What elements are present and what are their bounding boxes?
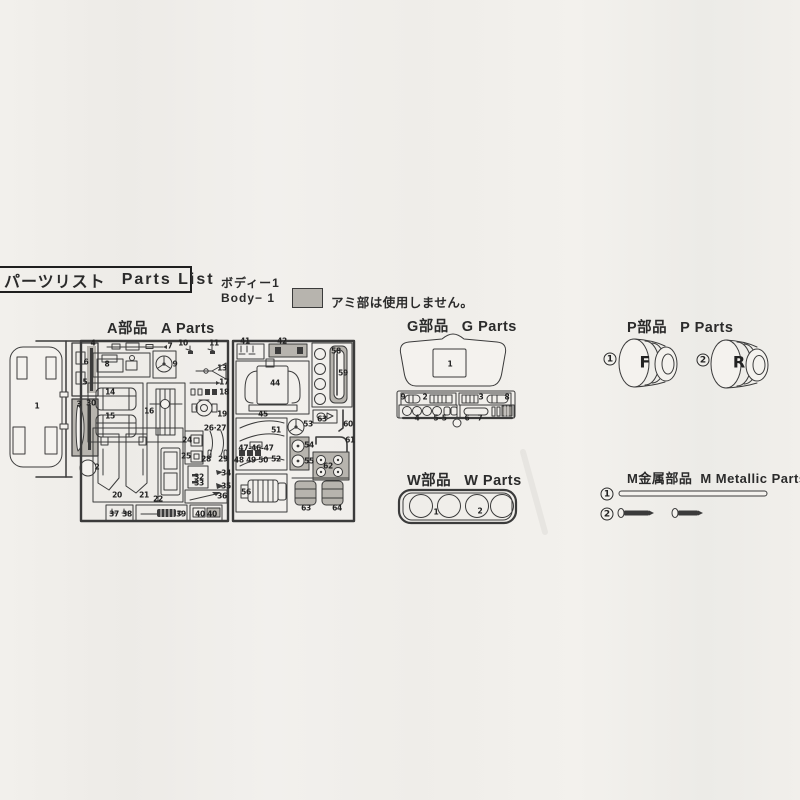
part-number: 10 — [178, 339, 188, 348]
part-number: 20 — [112, 491, 122, 500]
part-number: 36 — [217, 492, 227, 501]
part-number: 35 — [221, 482, 231, 491]
part-number: 40 — [207, 510, 217, 519]
screw-part-2 — [672, 509, 703, 518]
part-number: 52 — [271, 455, 281, 464]
part-number: 22 — [153, 495, 163, 504]
tire-letter: F — [640, 353, 651, 372]
part-number: 3 — [479, 393, 484, 402]
w-sprue-drawing — [399, 490, 516, 523]
metal-shaft-part — [619, 491, 767, 496]
part-number: 1 — [448, 360, 453, 369]
screw-part-1 — [618, 509, 654, 518]
part-number: 41 — [240, 337, 250, 346]
part-number: 38 — [122, 510, 132, 519]
part-number: 30 — [86, 399, 96, 408]
part-number: 5–5 — [433, 414, 446, 423]
part-number: 13 — [217, 364, 227, 373]
part-number: 56 — [241, 488, 251, 497]
tire-letter: R — [733, 353, 745, 372]
circled-number-marker: 1 — [601, 488, 614, 501]
part-number: 28 — [201, 455, 211, 464]
part-number: 6 — [465, 414, 470, 423]
part-number: 2 — [423, 393, 428, 402]
part-number: 61 — [345, 436, 355, 445]
part-number: 34 — [221, 469, 231, 478]
scan-crease — [523, 452, 545, 532]
part-number: 64 — [332, 504, 342, 513]
part-number: 47-46-47 — [238, 444, 273, 453]
part-number: 7 — [168, 342, 173, 351]
part-number: 58 — [331, 347, 341, 356]
a-sprue-2-drawing — [233, 341, 354, 521]
part-number: 18 — [219, 388, 229, 397]
parts-list-scan-page: パーツリスト Parts List ボディー1 Body− 1 アミ部は使用しま… — [0, 0, 800, 800]
part-number: 1 — [434, 508, 439, 517]
part-number: 7 — [478, 414, 483, 423]
part-number: 5 — [83, 378, 88, 387]
part-number: 51 — [271, 426, 281, 435]
part-number: 54 — [304, 441, 314, 450]
part-number: 63 — [317, 415, 327, 424]
part-number: 40 — [195, 510, 205, 519]
part-number: 48 49 50 — [234, 456, 268, 465]
part-number: 1 — [35, 402, 40, 411]
part-number: 6 — [84, 358, 89, 367]
part-number: 11 — [209, 339, 219, 348]
part-number: 8 — [105, 360, 110, 369]
part-number: 24 — [182, 436, 192, 445]
part-number: 59 — [338, 369, 348, 378]
part-number: 19 — [217, 410, 227, 419]
part-number: 4 — [91, 339, 96, 348]
part-number: 21 — [139, 491, 149, 500]
part-number: 2 — [95, 463, 100, 472]
m-parts-drawing — [618, 491, 767, 518]
part-number: 63 — [301, 504, 311, 513]
part-number: 9 — [401, 393, 406, 402]
part-number: 4 — [415, 414, 420, 423]
part-number: 60 — [343, 420, 353, 429]
part-number: 53 — [303, 420, 313, 429]
part-number: 8 — [505, 393, 510, 402]
part-number: 42 — [277, 337, 287, 346]
circled-number-marker: 2 — [697, 354, 710, 367]
part-number: 39 — [176, 510, 186, 519]
part-number: 62 — [323, 462, 333, 471]
part-number: 33 — [194, 479, 204, 488]
part-number: 45 — [258, 410, 268, 419]
part-number: 9 — [173, 360, 178, 369]
part-number: 25 — [181, 452, 191, 461]
part-number: 44 — [270, 379, 280, 388]
part-number: 29 — [218, 455, 228, 464]
part-number: 3 — [77, 400, 82, 409]
circled-number-marker: 2 — [601, 508, 614, 521]
part-number: 2 — [478, 507, 483, 516]
part-number: 17 — [219, 378, 229, 387]
circled-number-marker: 1 — [604, 353, 617, 366]
part-number: 16 — [144, 407, 154, 416]
part-number: 15 — [105, 412, 115, 421]
part-number: 14 — [105, 388, 115, 397]
part-number: 55 — [304, 457, 314, 466]
part-number: 26·27 — [204, 424, 226, 433]
part-number: 37 — [109, 510, 119, 519]
